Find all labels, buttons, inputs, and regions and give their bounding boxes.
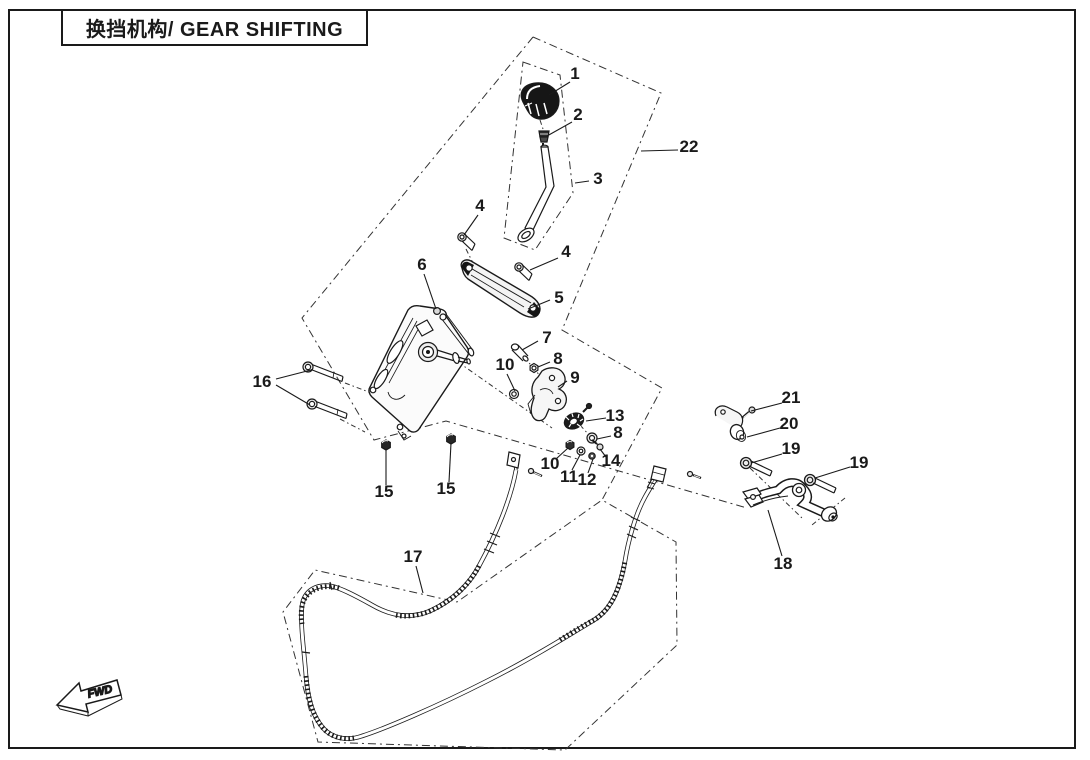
leader-line — [575, 181, 589, 183]
callout-label-7: 7 — [542, 328, 551, 347]
callout-label-19: 19 — [782, 439, 801, 458]
callout-label-1: 1 — [570, 64, 579, 83]
cable-ferrules — [302, 517, 640, 653]
part-2-lock-nut — [539, 131, 549, 147]
callout-label-21: 21 — [782, 388, 801, 407]
leader-line — [424, 274, 436, 309]
leader-line — [597, 436, 611, 439]
cable-end-lower — [647, 466, 701, 489]
leader-line — [751, 403, 782, 411]
callout-label-19: 19 — [850, 453, 869, 472]
cable-outline — [301, 470, 659, 739]
part-15-nut-b — [447, 434, 456, 444]
callout-label-4: 4 — [475, 196, 485, 215]
part-11-washer — [577, 447, 585, 455]
part-8-nut-upper — [530, 364, 538, 373]
leader-line — [815, 467, 850, 478]
callout-label-8: 8 — [553, 349, 562, 368]
leader-line — [464, 215, 478, 235]
bracket-group-boundary — [302, 37, 747, 508]
callout-label-22: 22 — [680, 137, 699, 156]
leader-line — [751, 454, 782, 463]
leader-line — [538, 362, 550, 367]
part-9-select-bracket — [528, 368, 566, 421]
cable-end-upper — [507, 452, 542, 476]
part-14-bolt — [592, 440, 603, 450]
part-8-nut-lower — [587, 433, 597, 443]
leader-line — [641, 150, 678, 151]
leader-line — [449, 443, 451, 482]
leader-line — [768, 510, 782, 556]
leader-line — [747, 428, 780, 437]
leader-line — [547, 122, 572, 136]
callout-label-10: 10 — [541, 454, 560, 473]
leader-line — [507, 374, 515, 391]
leader-line — [522, 341, 538, 350]
part-13-toothed-disc — [562, 404, 592, 433]
leader-line — [416, 566, 423, 593]
leader-line — [530, 258, 558, 270]
fwd-direction-arrow: FWD — [57, 680, 122, 716]
callout-label-12: 12 — [578, 470, 597, 489]
callouts-layer: 1234456789101381410111215151617181919202… — [253, 64, 869, 573]
leader-lines-layer — [276, 82, 850, 593]
callout-label-4: 4 — [561, 242, 571, 261]
assembly-group-boundary — [283, 37, 677, 750]
diagram-canvas: FWD 123445678910138141011121515161718191… — [0, 0, 1090, 760]
callout-label-18: 18 — [774, 554, 793, 573]
callout-label-8: 8 — [613, 423, 622, 442]
callout-label-5: 5 — [554, 288, 563, 307]
leader-line — [276, 370, 311, 379]
callout-label-11: 11 — [560, 467, 578, 486]
parts-artwork: FWD — [57, 83, 839, 739]
part-4-bolt-b — [515, 263, 532, 281]
part-19-bolt-a — [741, 458, 773, 477]
part-16-bolt-a — [303, 362, 343, 382]
callout-label-9: 9 — [570, 368, 579, 387]
callout-label-20: 20 — [780, 414, 799, 433]
part-10-bushing-upper — [510, 390, 519, 399]
part-21-bolt — [742, 407, 755, 418]
callout-label-10: 10 — [496, 355, 515, 374]
callout-label-3: 3 — [593, 169, 602, 188]
callout-label-17: 17 — [404, 547, 423, 566]
callout-label-14: 14 — [602, 451, 621, 470]
leader-line — [276, 385, 310, 405]
leader-line — [586, 418, 606, 421]
callout-label-6: 6 — [417, 255, 426, 274]
parts-diagram-page: 换挡机构/ GEAR SHIFTING — [0, 0, 1090, 760]
part-12-washer — [589, 453, 595, 459]
part-15-nut-a — [382, 440, 391, 450]
callout-label-15: 15 — [437, 479, 456, 498]
part-20-shift-arm — [715, 406, 747, 443]
part-16-bolt-b — [307, 399, 347, 419]
part-6-mounting-bracket — [369, 306, 475, 440]
part-1-shift-knob — [521, 83, 559, 119]
part-17-shift-cable — [301, 452, 701, 739]
part-4-bolt-a — [458, 233, 475, 251]
callout-label-15: 15 — [375, 482, 394, 501]
callout-label-2: 2 — [573, 105, 582, 124]
callout-label-16: 16 — [253, 372, 272, 391]
